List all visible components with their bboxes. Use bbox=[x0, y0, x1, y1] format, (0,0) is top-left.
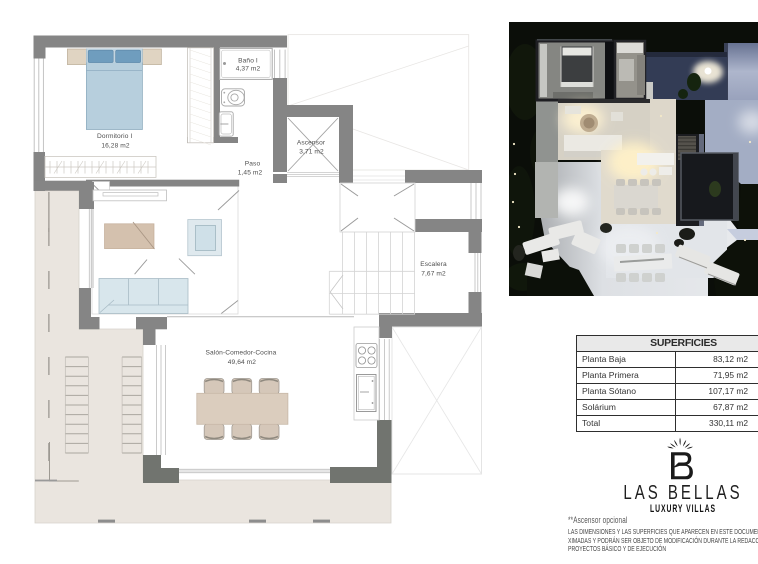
svg-text:Baño I: Baño I bbox=[238, 58, 258, 65]
svg-text:Paso: Paso bbox=[245, 161, 261, 168]
svg-text:Salón-Comedor-Cocina: Salón-Comedor-Cocina bbox=[206, 350, 277, 357]
svg-text:1,45 m2: 1,45 m2 bbox=[238, 170, 263, 177]
svg-text:4,37 m2: 4,37 m2 bbox=[236, 65, 261, 72]
svg-text:Dormitorio I: Dormitorio I bbox=[97, 133, 132, 140]
svg-text:3,71 m2: 3,71 m2 bbox=[299, 149, 324, 156]
svg-text:49,64 m2: 49,64 m2 bbox=[228, 359, 257, 366]
svg-text:16,28 m2: 16,28 m2 bbox=[101, 143, 130, 150]
svg-text:Escalera: Escalera bbox=[420, 261, 447, 268]
svg-text:7,67 m2: 7,67 m2 bbox=[421, 271, 446, 278]
svg-text:Ascensor: Ascensor bbox=[297, 140, 326, 147]
